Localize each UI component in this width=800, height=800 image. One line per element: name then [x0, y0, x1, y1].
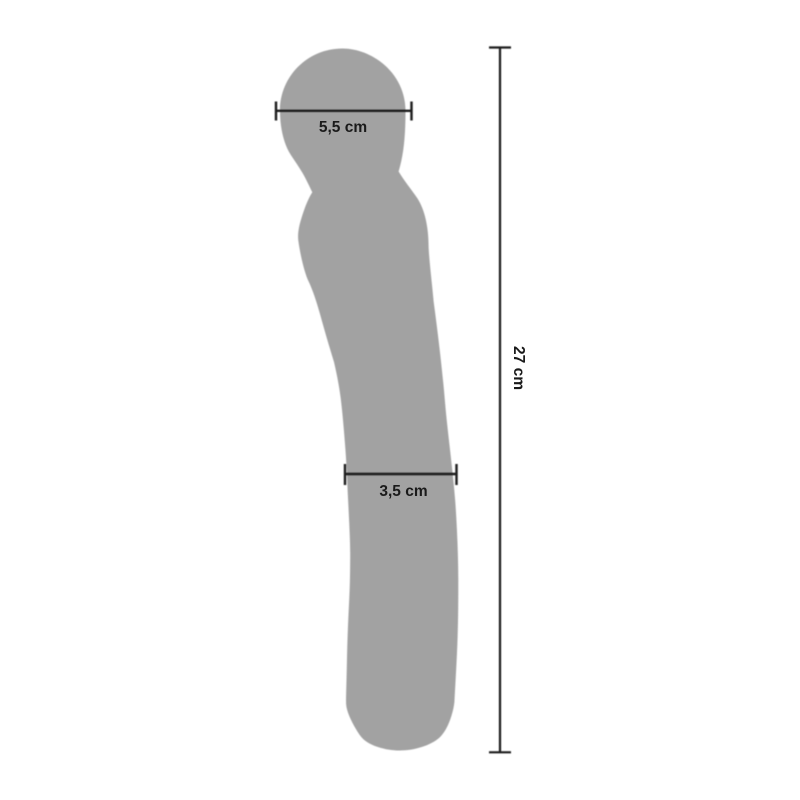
svg-text:5,5 cm: 5,5 cm: [319, 119, 367, 136]
svg-text:3,5 cm: 3,5 cm: [379, 483, 427, 500]
svg-text:27 cm: 27 cm: [510, 346, 527, 390]
